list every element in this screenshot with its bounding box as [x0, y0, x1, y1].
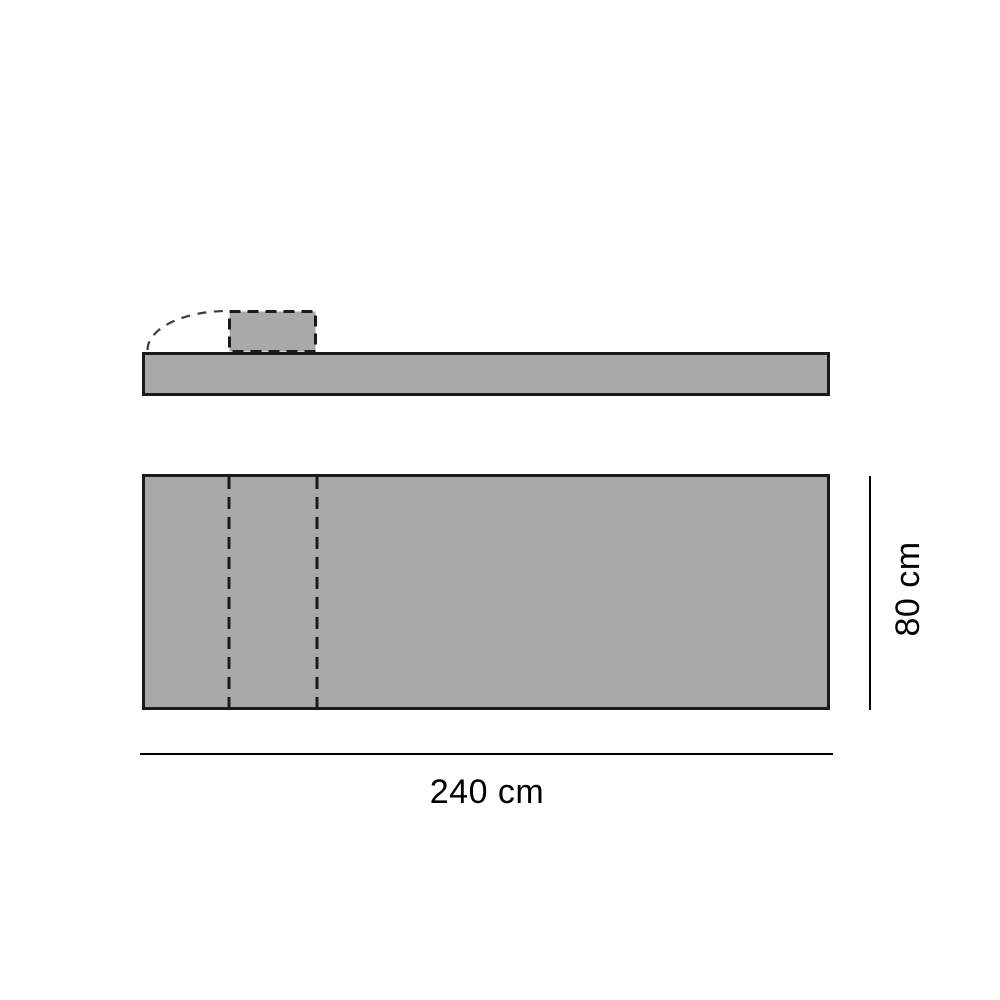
- top-view: [144, 476, 829, 709]
- width-dimension-label: 240 cm: [430, 773, 545, 811]
- dimension-diagram: 240 cm 80 cm: [0, 0, 1000, 1000]
- diagram-canvas: 240 cm 80 cm: [0, 0, 1000, 1000]
- panel-side-view: [144, 354, 829, 395]
- width-dimension: 240 cm: [140, 754, 833, 811]
- panel-top-view: [144, 476, 829, 709]
- flap-side-view: [230, 312, 316, 352]
- side-view: [144, 311, 829, 395]
- height-dimension: 80 cm: [870, 476, 927, 710]
- fold-motion-arc: [148, 311, 228, 350]
- height-dimension-label: 80 cm: [889, 541, 927, 636]
